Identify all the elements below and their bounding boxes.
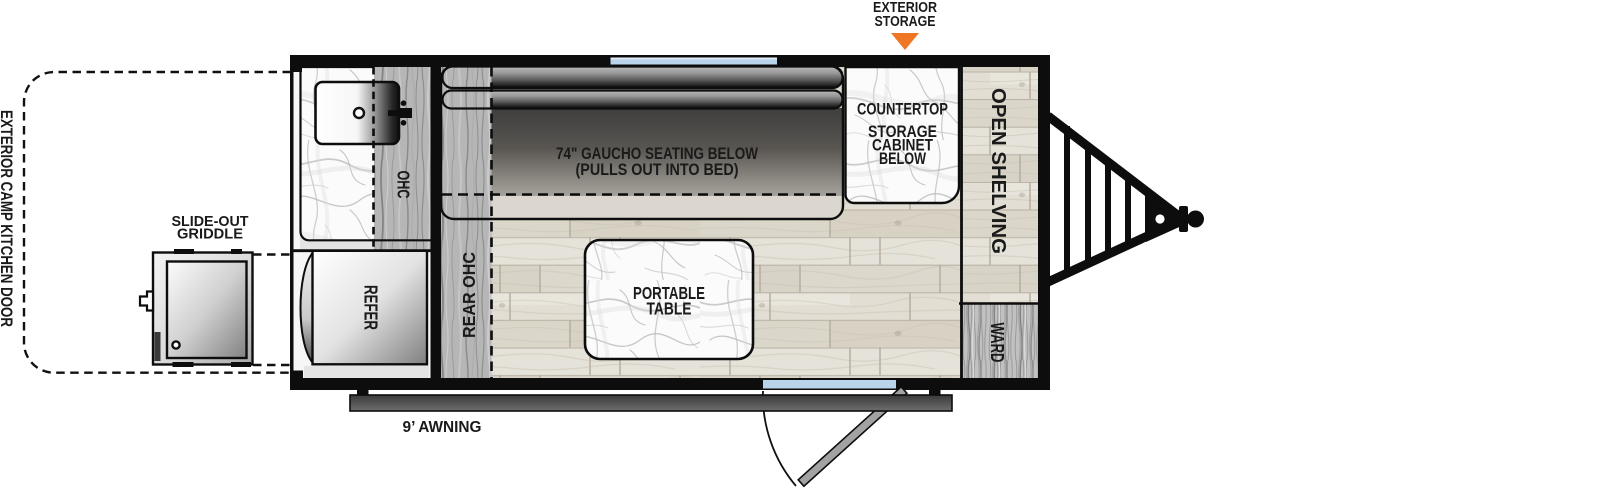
svg-text:TABLE: TABLE (647, 299, 692, 319)
svg-text:REFER: REFER (361, 285, 382, 330)
svg-text:REAR OHC: REAR OHC (459, 252, 479, 338)
svg-text:STORAGE: STORAGE (875, 14, 936, 30)
svg-text:OHC: OHC (394, 171, 414, 199)
svg-text:BELOW: BELOW (879, 149, 927, 168)
svg-text:9’ AWNING: 9’ AWNING (403, 419, 482, 436)
svg-text:OPEN SHELVING: OPEN SHELVING (987, 88, 1009, 254)
svg-text:GRIDDLE: GRIDDLE (177, 226, 243, 243)
svg-text:COUNTERTOP: COUNTERTOP (857, 100, 948, 119)
svg-text:(PULLS OUT INTO BED): (PULLS OUT INTO BED) (576, 161, 739, 179)
svg-text:EXTERIOR CAMP KITCHEN DOOR: EXTERIOR CAMP KITCHEN DOOR (0, 110, 15, 327)
svg-text:WARD: WARD (987, 323, 1008, 363)
